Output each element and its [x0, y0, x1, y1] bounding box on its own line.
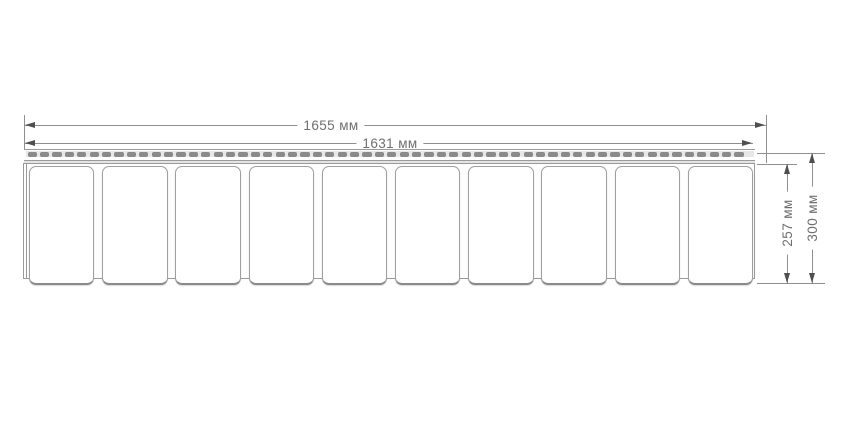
nail-slot — [201, 152, 210, 157]
nail-slot — [238, 152, 247, 157]
arrowhead-up-icon — [809, 153, 815, 163]
nail-slot — [90, 152, 99, 157]
nail-slot — [536, 152, 545, 157]
nail-slot — [325, 152, 334, 157]
nail-hem-slot-row — [26, 151, 754, 157]
nail-slot — [710, 152, 719, 157]
shake-panel — [688, 166, 753, 285]
nail-slot — [672, 152, 681, 157]
nail-slot — [474, 152, 483, 157]
extension-line-right-outer — [766, 115, 767, 163]
nail-slot — [623, 152, 632, 157]
nail-slot — [338, 152, 347, 157]
nail-slot — [400, 152, 409, 157]
nail-slot — [152, 152, 161, 157]
nail-slot — [648, 152, 657, 157]
shake-panel — [322, 166, 387, 285]
nail-slot — [114, 152, 123, 157]
nail-slot — [734, 152, 743, 157]
nail-slot — [573, 152, 582, 157]
shake-panel — [615, 166, 680, 285]
nail-slot — [437, 152, 446, 157]
shake-panel — [102, 166, 167, 285]
nail-slot — [610, 152, 619, 157]
nail-slot — [77, 152, 86, 157]
shake-panel — [395, 166, 460, 285]
extension-line-top-inner — [757, 164, 797, 165]
shake-panel — [29, 166, 94, 285]
nail-slot — [276, 152, 285, 157]
nail-slot — [635, 152, 644, 157]
nail-slot — [387, 152, 396, 157]
nail-hem-top-edge — [24, 149, 755, 150]
siding-panel-dimension-drawing: 1655 мм 1631 мм 257 мм 300 мм — [0, 0, 850, 425]
arrowhead-left-icon — [25, 140, 35, 146]
arrowhead-right-icon — [755, 122, 765, 128]
nail-slot — [52, 152, 61, 157]
dimension-label-height-outer: 300 мм — [805, 186, 821, 249]
shake-panel — [468, 166, 533, 285]
nail-slot — [499, 152, 508, 157]
nail-slot — [40, 152, 49, 157]
arrowhead-left-icon — [25, 122, 35, 128]
arrowhead-down-icon — [784, 273, 790, 283]
nail-slot — [263, 152, 272, 157]
arrowhead-down-icon — [809, 273, 815, 283]
nail-slot — [598, 152, 607, 157]
nail-slot — [511, 152, 520, 157]
nail-slot — [561, 152, 570, 157]
nail-slot — [722, 152, 731, 157]
nail-slot — [313, 152, 322, 157]
nail-slot — [176, 152, 185, 157]
nail-slot — [424, 152, 433, 157]
nail-slot — [288, 152, 297, 157]
nail-slot — [362, 152, 371, 157]
nail-slot — [127, 152, 136, 157]
nail-slot — [685, 152, 694, 157]
shake-panel — [541, 166, 606, 285]
nail-slot — [486, 152, 495, 157]
nail-slot — [28, 152, 37, 157]
arrowhead-up-icon — [784, 164, 790, 174]
nail-slot — [375, 152, 384, 157]
nail-slot — [350, 152, 359, 157]
dimension-label-width-outer: 1655 мм — [297, 118, 364, 134]
nail-slot — [548, 152, 557, 157]
nail-slot — [697, 152, 706, 157]
nail-slot — [449, 152, 458, 157]
extension-line-bottom — [757, 283, 825, 284]
nail-slot — [226, 152, 235, 157]
arrowhead-right-icon — [742, 140, 752, 146]
nail-slot — [65, 152, 74, 157]
nail-slot — [189, 152, 198, 157]
left-edge-fold-line — [26, 163, 27, 279]
nail-slot — [462, 152, 471, 157]
nail-slot — [412, 152, 421, 157]
nail-slot — [139, 152, 148, 157]
nail-slot — [660, 152, 669, 157]
dimension-line-width-outer — [24, 125, 766, 126]
shake-panel — [175, 166, 240, 285]
nail-slot — [586, 152, 595, 157]
nail-slot — [251, 152, 260, 157]
nail-slot — [300, 152, 309, 157]
nail-slot — [524, 152, 533, 157]
nail-slot — [164, 152, 173, 157]
nail-slot — [102, 152, 111, 157]
nail-slot — [214, 152, 223, 157]
dimension-label-height-inner: 257 мм — [780, 191, 796, 254]
shake-panel — [249, 166, 314, 285]
